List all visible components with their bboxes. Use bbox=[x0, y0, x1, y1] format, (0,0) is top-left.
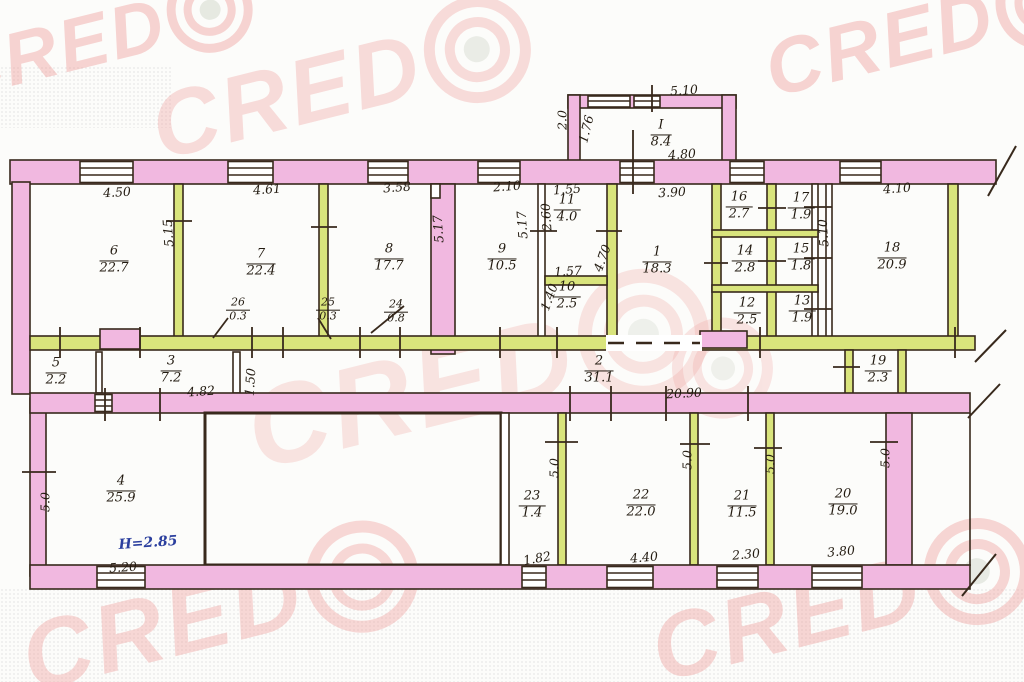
room-label-16: 162.7 bbox=[726, 190, 753, 221]
room-label-26: 260.3 bbox=[226, 297, 250, 324]
dim-label: 2.0 bbox=[555, 110, 570, 130]
room-label-7: 722.4 bbox=[247, 247, 276, 278]
room-area: 2.8 bbox=[735, 260, 756, 275]
room-number: 2 bbox=[585, 354, 614, 371]
hall-outline bbox=[205, 413, 501, 565]
room-area: 22.0 bbox=[627, 504, 656, 519]
room-number: 14 bbox=[732, 244, 759, 261]
corridor-partitions bbox=[96, 350, 906, 394]
room-number: 17 bbox=[788, 191, 815, 208]
dim-label: 5.0 bbox=[763, 454, 778, 474]
room-number: 25 bbox=[316, 297, 340, 311]
room-number: 1 bbox=[643, 245, 672, 262]
room-area: 0.8 bbox=[387, 312, 405, 325]
room-label-8: 817.7 bbox=[375, 242, 404, 273]
room-number: 23 bbox=[519, 489, 546, 506]
dim-label: 2.60 bbox=[538, 203, 555, 232]
room-label-4: 425.9 bbox=[107, 474, 136, 505]
bottom-wall bbox=[30, 554, 996, 596]
room-area: 22.4 bbox=[247, 263, 276, 278]
room-label-14: 142.8 bbox=[732, 244, 759, 275]
room-number: 4 bbox=[107, 474, 136, 491]
room-number: 22 bbox=[627, 488, 656, 505]
corridor-bottom-wall bbox=[30, 384, 1000, 418]
room-label-2: 231.1 bbox=[585, 354, 614, 385]
room-number: 7 bbox=[247, 247, 276, 264]
room-label-19: 192.3 bbox=[865, 354, 892, 385]
room-label-9: 910.5 bbox=[488, 242, 517, 273]
dim-label: 4.82 bbox=[187, 383, 216, 400]
room-number: 20 bbox=[829, 487, 858, 504]
room-area: 0.3 bbox=[229, 310, 247, 323]
dim-label: 2.10 bbox=[493, 178, 522, 195]
room-area: 25.9 bbox=[107, 490, 136, 505]
dim-label: 3.90 bbox=[658, 184, 687, 200]
room-label-25: 250.3 bbox=[316, 297, 340, 324]
room-label-22: 2222.0 bbox=[627, 488, 656, 519]
dim-label: 20.90 bbox=[666, 385, 703, 402]
room-label-5: 52.2 bbox=[46, 356, 67, 387]
room-area: 4.0 bbox=[557, 209, 578, 224]
room-number: 24 bbox=[384, 299, 408, 313]
room-area: 31.1 bbox=[585, 370, 614, 385]
room-label-20: 2019.0 bbox=[829, 487, 858, 518]
room-number: 16 bbox=[726, 190, 753, 207]
room-label-13: 131.9 bbox=[789, 294, 816, 325]
walls-layer bbox=[10, 85, 1016, 596]
room-label-1: 118.3 bbox=[643, 245, 672, 276]
room-number: 19 bbox=[865, 354, 892, 371]
floorplan-drawing bbox=[0, 0, 1024, 682]
left-outer-wall bbox=[12, 182, 30, 394]
left-outer-wall-lower bbox=[30, 398, 46, 576]
room-number: I bbox=[651, 118, 672, 135]
room-area: 2.7 bbox=[729, 206, 750, 221]
room-area: 2.5 bbox=[557, 296, 578, 311]
room-label-24: 240.8 bbox=[384, 299, 408, 326]
room-area: 20.9 bbox=[878, 257, 907, 272]
room-label-18: 1820.9 bbox=[878, 241, 907, 272]
dim-label: 5.0 bbox=[547, 458, 562, 478]
dim-label: 3.58 bbox=[383, 179, 412, 196]
room-area: 0.3 bbox=[319, 310, 337, 323]
room-area: 2.3 bbox=[868, 370, 889, 385]
room-area: 2.5 bbox=[737, 312, 758, 327]
room-number: 3 bbox=[161, 354, 182, 371]
room-label-15: 151.8 bbox=[788, 242, 815, 273]
dim-label: 4.50 bbox=[103, 184, 132, 200]
room-number: 9 bbox=[488, 242, 517, 259]
room-label-21: 2111.5 bbox=[728, 489, 757, 520]
dim-label: 2.30 bbox=[731, 545, 760, 562]
room-area: 19.0 bbox=[829, 503, 858, 518]
room-number: 5 bbox=[46, 356, 67, 373]
dim-label: 4.10 bbox=[883, 180, 912, 197]
room-label-17: 171.9 bbox=[788, 191, 815, 222]
room-area: 18.3 bbox=[643, 261, 672, 276]
dim-label: 1.55 bbox=[553, 181, 582, 198]
dim-label: 4.80 bbox=[668, 146, 697, 163]
dim-label: 4.61 bbox=[253, 181, 282, 198]
room-area: 2.2 bbox=[46, 372, 67, 387]
dim-label: 5.0 bbox=[680, 450, 695, 470]
dim-label: 5.10 bbox=[815, 219, 832, 248]
room-number: 26 bbox=[226, 297, 250, 311]
room-label-11: 114.0 bbox=[554, 193, 581, 224]
room-label-12: 122.5 bbox=[734, 296, 761, 327]
room-area: 22.7 bbox=[100, 260, 129, 275]
room-label-3: 37.2 bbox=[161, 354, 182, 385]
room-number: 15 bbox=[788, 242, 815, 259]
room-label-23: 231.4 bbox=[519, 489, 546, 520]
dim-label: 1.50 bbox=[242, 368, 259, 397]
dim-label: 3.80 bbox=[826, 542, 855, 559]
room-label-6: 622.7 bbox=[100, 244, 129, 275]
room-area: 7.2 bbox=[161, 370, 182, 385]
dim-label: 1.57 bbox=[554, 263, 583, 279]
floorplan-page: CRED CRED CRED CRED CRED CRED bbox=[0, 0, 1024, 682]
room-number: 6 bbox=[100, 244, 129, 261]
room-area: 1.4 bbox=[522, 505, 543, 520]
room-number: 18 bbox=[878, 241, 907, 258]
dim-label: 5.0 bbox=[878, 448, 893, 468]
dim-label: 5.20 bbox=[109, 559, 138, 576]
room-area: 11.5 bbox=[728, 505, 757, 520]
dim-label: 5.17 bbox=[430, 215, 447, 244]
room-area: 10.5 bbox=[488, 258, 517, 273]
room-area: 1.9 bbox=[791, 207, 812, 222]
room-label-I: I8.4 bbox=[651, 118, 672, 149]
room-area: 1.9 bbox=[792, 310, 813, 325]
dim-label: 5.0 bbox=[38, 492, 53, 512]
room-area: 1.8 bbox=[791, 258, 812, 273]
room-number: 13 bbox=[789, 294, 816, 311]
dim-label: 5.10 bbox=[670, 82, 699, 99]
room-number: 8 bbox=[375, 242, 404, 259]
room-area: 17.7 bbox=[375, 258, 404, 273]
room-number: 12 bbox=[734, 296, 761, 313]
dim-label: 5.17 bbox=[514, 211, 531, 240]
room-number: 21 bbox=[728, 489, 757, 506]
dim-label: 4.40 bbox=[629, 548, 658, 565]
dim-label: 5.15 bbox=[160, 219, 177, 248]
